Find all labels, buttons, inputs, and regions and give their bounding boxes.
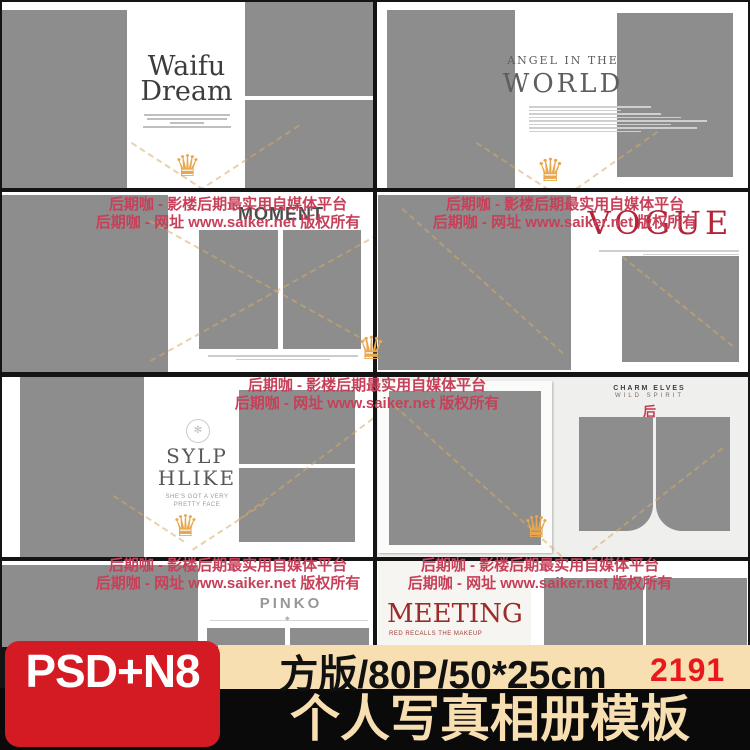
watermark-text: 后期咖 - 影楼后期最实用自媒体平台 后期咖 - 网址 www.saiker.n… bbox=[78, 557, 378, 593]
format-badge: PSD+N8 bbox=[5, 641, 220, 747]
diamond-icon: ◆ bbox=[285, 615, 290, 622]
watermark-text: 后期咖 - 影楼后期最实用自媒体平台 后期咖 - 网址 www.saiker.n… bbox=[78, 196, 378, 232]
crown-icon: ♛ bbox=[536, 154, 565, 186]
album-title-line: ANGEL IN THE bbox=[483, 54, 643, 67]
caption-placeholder bbox=[205, 353, 361, 362]
watermark-line: 后期咖 - 影楼后期最实用自媒体平台 bbox=[415, 196, 715, 214]
text-line-placeholder bbox=[529, 131, 641, 133]
watermark-line: 后期咖 - 网址 www.saiker.net 版权所有 bbox=[78, 214, 378, 232]
crown-icon: ♛ bbox=[174, 152, 201, 182]
text-line-placeholder bbox=[599, 250, 739, 252]
photo-placeholder bbox=[245, 100, 373, 188]
photo-placeholder bbox=[20, 377, 144, 557]
watermark-line: 后期咖 - 影楼后期最实用自媒体平台 bbox=[78, 196, 378, 214]
text-line-placeholder bbox=[529, 124, 671, 126]
watermark-line: 后期咖 - 影楼后期最实用自媒体平台 bbox=[78, 557, 378, 575]
photo-placeholder bbox=[245, 2, 373, 96]
photo-placeholder bbox=[579, 417, 653, 531]
format-badge-label: PSD+N8 bbox=[25, 644, 199, 698]
text-line-placeholder bbox=[170, 122, 204, 124]
watermark-line: 后期咖 - 影楼后期最实用自媒体平台 bbox=[217, 377, 517, 395]
album-title: ANGEL IN THE WORLD bbox=[483, 54, 643, 99]
watermark-text: 后期咖 - 影楼后期最实用自媒体平台 后期咖 - 网址 www.saiker.n… bbox=[415, 196, 715, 232]
text-line-placeholder bbox=[643, 254, 739, 256]
text-line-placeholder bbox=[208, 355, 358, 357]
text-line-placeholder bbox=[529, 113, 661, 115]
text-line-placeholder bbox=[529, 110, 621, 112]
watermark-line: 后期咖 - 网址 www.saiker.net 版权所有 bbox=[415, 214, 715, 232]
text-line-placeholder bbox=[529, 117, 681, 119]
album-title: MEETING bbox=[387, 599, 527, 629]
watermark-text: 后期咖 - 影楼后期最实用自媒体平台 后期咖 - 网址 www.saiker.n… bbox=[390, 557, 690, 593]
watermark-text: 后期咖 - 影楼后期最实用自媒体平台 后期咖 - 网址 www.saiker.n… bbox=[217, 377, 517, 413]
watermark-line: 后期咖 - 影楼后期最实用自媒体平台 bbox=[390, 557, 690, 575]
item-number: 2191 bbox=[650, 652, 725, 689]
photo-placeholder bbox=[2, 10, 127, 188]
album-title: Waifu Dream bbox=[128, 54, 245, 104]
watermark-line: 后期咖 - 网址 www.saiker.net 版权所有 bbox=[78, 575, 378, 593]
text-line-placeholder bbox=[529, 106, 651, 108]
photo-placeholder bbox=[387, 10, 515, 188]
text-line-placeholder bbox=[144, 114, 230, 116]
album-subtitle-line: WILD SPIRIT bbox=[551, 393, 748, 399]
photo-placeholder bbox=[199, 230, 278, 349]
product-title: 个人写真相册模板 bbox=[230, 690, 750, 748]
body-text-placeholder bbox=[142, 112, 232, 130]
text-line-placeholder bbox=[143, 126, 231, 128]
crown-icon: ♛ bbox=[523, 513, 550, 543]
album-title-line: WORLD bbox=[483, 69, 643, 99]
text-line-placeholder bbox=[529, 120, 707, 122]
text-line-placeholder bbox=[147, 118, 227, 120]
album-title-line: CHARM ELVES bbox=[551, 385, 748, 392]
crown-icon: ♛ bbox=[357, 332, 386, 364]
photo-placeholder bbox=[656, 417, 730, 531]
body-text-placeholder bbox=[529, 104, 709, 134]
album-title-line: Dream bbox=[128, 79, 245, 104]
text-line-placeholder bbox=[236, 359, 330, 361]
album-subtitle: RED RECALLS THE MAKEUP bbox=[389, 631, 482, 637]
product-listing-image: Waifu Dream ANGEL IN THE WORLD bbox=[0, 0, 750, 750]
watermark-line: 后期咖 - 网址 www.saiker.net 版权所有 bbox=[217, 395, 517, 413]
watermark-line: 后期咖 - 网址 www.saiker.net 版权所有 bbox=[390, 575, 690, 593]
crown-icon: ♛ bbox=[172, 512, 199, 542]
ornament-icon: ✻ bbox=[186, 419, 210, 443]
album-title: PINKO bbox=[218, 595, 364, 612]
album-header: CHARM ELVES WILD SPIRIT 后 bbox=[551, 385, 748, 420]
text-line-placeholder bbox=[529, 127, 697, 129]
